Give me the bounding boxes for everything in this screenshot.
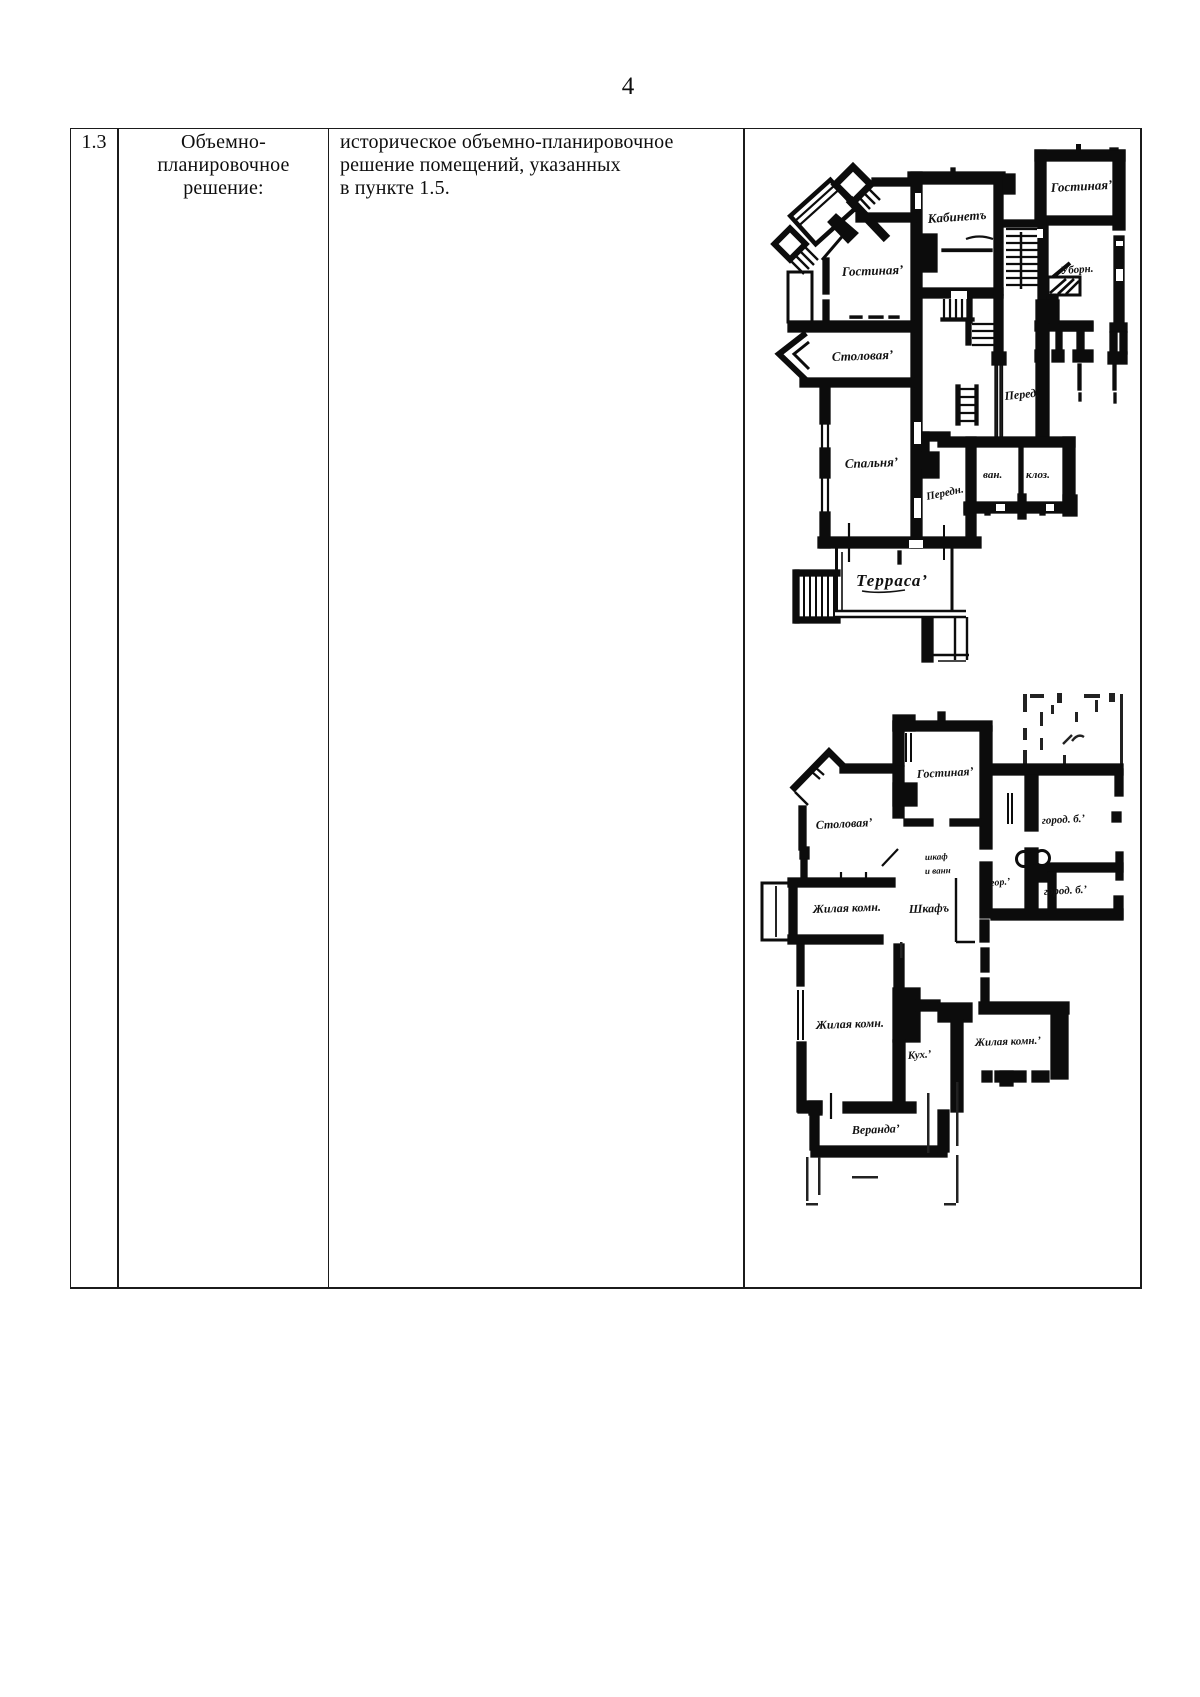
svg-text:Кух.’: Кух.’ [906,1048,932,1062]
svg-text:Гостиная’: Гостиная’ [915,764,973,781]
svg-text:Жилая комн.: Жилая комн. [812,900,882,916]
svg-text:Гостиная’: Гостиная’ [841,262,904,279]
svg-text:Столовая’: Столовая’ [832,347,894,364]
svg-text:и ванн: и ванн [925,865,951,876]
svg-text:Жилая комн.’: Жилая комн.’ [974,1035,1042,1049]
svg-text:город. б.’: город. б.’ [1044,884,1088,898]
svg-text:Шкафъ: Шкафъ [908,901,950,916]
svg-text:Жилая комн.: Жилая комн. [815,1016,885,1032]
svg-text:Гостиная’: Гостиная’ [1049,177,1112,195]
svg-text:Передн.: Передн. [924,483,965,503]
svg-text:Спальня’: Спальня’ [845,454,899,471]
svg-text:Терраса’: Терраса’ [856,571,928,590]
svg-text:ван.: ван. [983,469,1002,481]
svg-text:Уборн.: Уборн. [1060,263,1093,277]
svg-text:клоз.: клоз. [1026,469,1050,481]
svg-text:Столовая’: Столовая’ [815,815,872,832]
svg-text:шкаф: шкаф [925,851,949,862]
svg-text:город. б.’: город. б.’ [1042,813,1086,827]
svg-text:Кабинетъ: Кабинетъ [926,207,987,226]
svg-text:Перед.: Перед. [1003,385,1040,403]
svg-text:Веранда’: Веранда’ [851,1121,900,1137]
svg-text:гор.’: гор.’ [990,876,1010,889]
